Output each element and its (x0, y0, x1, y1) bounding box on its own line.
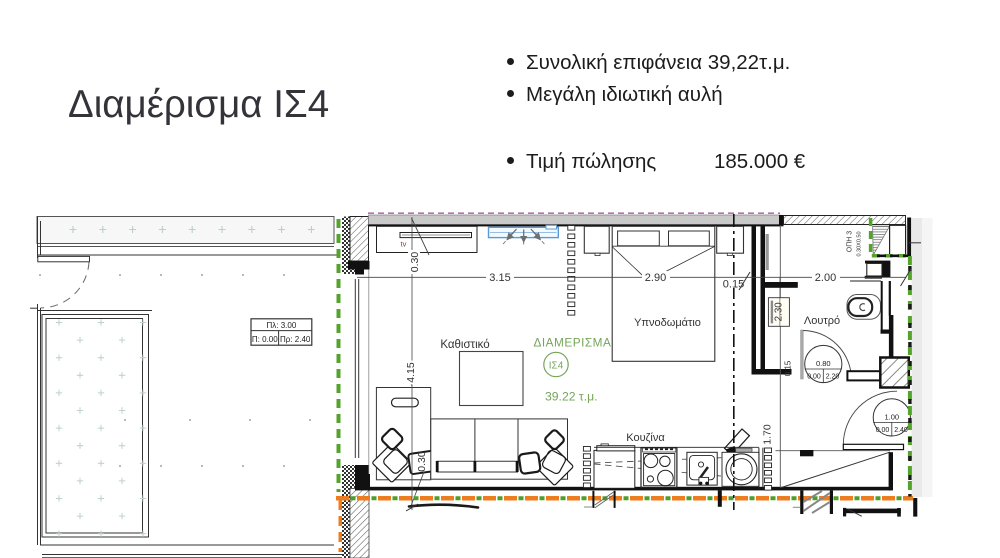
svg-text:0.00: 0.00 (876, 427, 890, 434)
svg-text:1.00: 1.00 (884, 412, 899, 421)
svg-text:ΙΣ4: ΙΣ4 (549, 360, 564, 371)
svg-text:4.15: 4.15 (405, 362, 417, 383)
svg-text:ΔΙΑΜΕΡΙΣΜΑ: ΔΙΑΜΕΡΙΣΜΑ (534, 336, 612, 350)
svg-text:0.00: 0.00 (807, 374, 821, 381)
svg-text:Κουζίνα: Κουζίνα (626, 432, 665, 444)
svg-text:tv: tv (401, 240, 407, 249)
svg-text:Καθιστικό: Καθιστικό (440, 339, 489, 351)
svg-text:2.90: 2.90 (645, 272, 666, 284)
svg-text:0.30Χ0.50: 0.30Χ0.50 (857, 231, 863, 256)
svg-text:39.22 τ.μ.: 39.22 τ.μ. (545, 390, 598, 404)
svg-text:Λουτρό: Λουτρό (804, 315, 840, 327)
svg-text:0.80: 0.80 (816, 359, 831, 368)
svg-text:ΟΠΗ 3: ΟΠΗ 3 (847, 231, 854, 253)
svg-text:1.70: 1.70 (762, 424, 774, 445)
svg-text:0.30: 0.30 (416, 451, 428, 472)
svg-text:0.15: 0.15 (723, 279, 744, 291)
svg-text:0.30: 0.30 (409, 252, 421, 273)
svg-text:2.40: 2.40 (894, 427, 908, 434)
svg-text:Πρ: 2.40: Πρ: 2.40 (280, 335, 311, 344)
svg-text:2.00: 2.00 (815, 272, 836, 284)
svg-text:2.30: 2.30 (774, 302, 785, 322)
svg-text:Πλ: 3.00: Πλ: 3.00 (267, 321, 297, 330)
svg-text:3.15: 3.15 (489, 272, 510, 284)
svg-text:Υπνοδωμάτιο: Υπνοδωμάτιο (634, 317, 701, 329)
svg-text:Π: 0.00: Π: 0.00 (252, 335, 278, 344)
svg-text:0.15: 0.15 (784, 360, 793, 376)
svg-text:2.20: 2.20 (826, 374, 840, 381)
